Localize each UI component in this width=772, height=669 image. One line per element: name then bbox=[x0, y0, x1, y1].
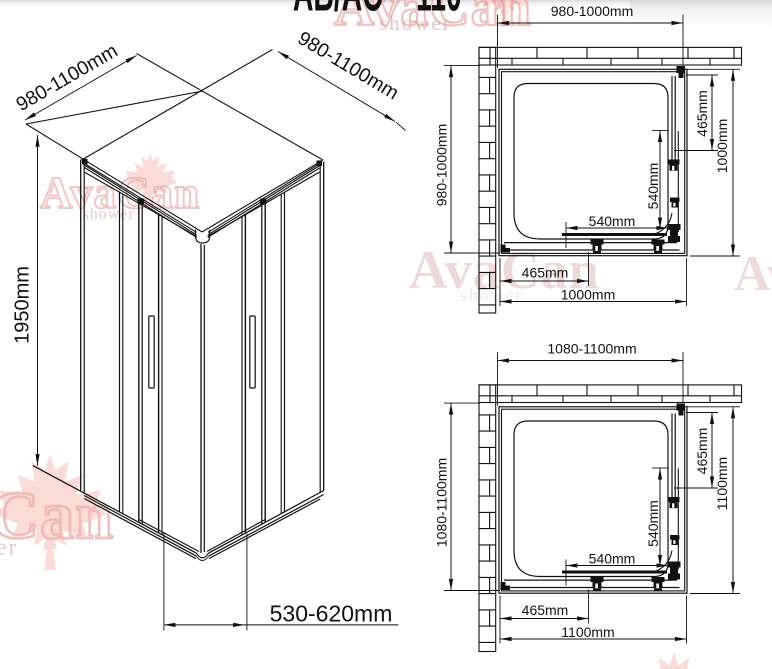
svg-text:1000mm: 1000mm bbox=[714, 119, 730, 173]
svg-text:shower: shower bbox=[0, 534, 18, 560]
svg-text:980-1000mm: 980-1000mm bbox=[434, 124, 450, 207]
svg-text:AvaCan: AvaCan bbox=[734, 245, 772, 301]
svg-text:1080-1100mm: 1080-1100mm bbox=[547, 341, 636, 357]
svg-text:465mm: 465mm bbox=[522, 265, 569, 281]
svg-text:1080-1100mm: 1080-1100mm bbox=[434, 458, 450, 547]
svg-text:540mm: 540mm bbox=[645, 500, 661, 547]
svg-text:540mm: 540mm bbox=[589, 551, 636, 567]
svg-text:1950mm: 1950mm bbox=[12, 266, 34, 344]
svg-text:465mm: 465mm bbox=[694, 90, 710, 137]
svg-text:1000mm: 1000mm bbox=[561, 287, 615, 303]
svg-text:AB/AC: AB/AC bbox=[293, 0, 383, 23]
svg-text:1100mm: 1100mm bbox=[714, 457, 730, 510]
svg-text:465mm: 465mm bbox=[694, 428, 710, 475]
svg-text:110: 110 bbox=[416, 0, 462, 23]
svg-text:540mm: 540mm bbox=[645, 163, 661, 210]
svg-text:shower: shower bbox=[83, 206, 135, 223]
svg-text:465mm: 465mm bbox=[522, 602, 569, 618]
svg-text:980-1000mm: 980-1000mm bbox=[551, 3, 634, 19]
svg-text:540mm: 540mm bbox=[589, 213, 636, 229]
svg-text:530-620mm: 530-620mm bbox=[270, 600, 393, 626]
svg-text:1100mm: 1100mm bbox=[561, 624, 614, 640]
